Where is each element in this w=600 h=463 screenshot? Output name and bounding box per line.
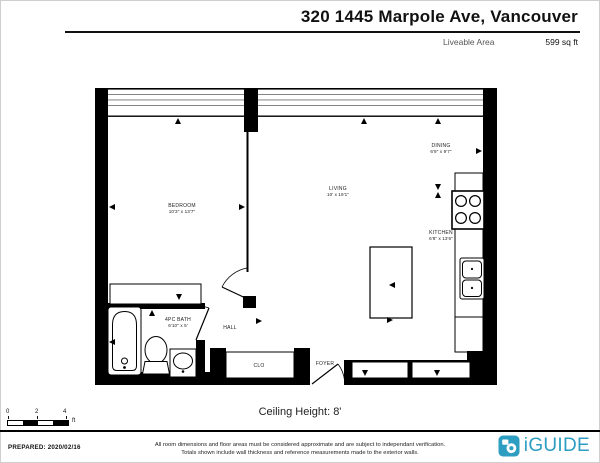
scale-tickmark [8, 416, 9, 419]
kitchen-sink-icon [460, 258, 484, 299]
scale-segment [23, 421, 38, 425]
room-label-clo: CLO [253, 363, 264, 369]
scale-segment [53, 421, 68, 425]
room-dims: 6'9" x 9'7" [430, 149, 451, 155]
room-name: FOYER [316, 361, 334, 367]
scale-tick-0: 0 [6, 409, 9, 415]
room-label-living: LIVING 10' x 19'1" [327, 186, 349, 198]
kitchen-island [370, 247, 412, 318]
room-label-bedroom: BEDROOM 10'3" x 13'7" [168, 203, 196, 215]
floorplan-page: 320 1445 Marpole Ave, Vancouver Liveable… [0, 0, 600, 463]
disclaimer-text: All room dimensions and floor areas must… [80, 441, 520, 457]
window-wall [95, 88, 497, 117]
room-dims: 10'3" x 13'7" [168, 209, 196, 215]
room-name: HALL [223, 325, 237, 331]
prepared-date: PREPARED: 2020/02/16 [8, 444, 81, 451]
room-dims: 6'8" x 13'6" [429, 236, 453, 242]
disclaimer-line-2: Totals shown include wall thickness and … [80, 449, 520, 457]
ceiling-height: Ceiling Height: 8' [0, 406, 600, 418]
scale-tickmark [37, 416, 38, 419]
room-label-hall: HALL [223, 325, 237, 331]
room-label-dining: DINING 6'9" x 9'7" [430, 143, 451, 155]
scale-segment [38, 421, 53, 425]
room-label-foyer: FOYER [316, 361, 334, 367]
footer-divider [0, 430, 600, 432]
disclaimer-line-1: All room dimensions and floor areas must… [80, 441, 520, 449]
iguide-wordmark: iGUIDE [524, 435, 590, 457]
stove-icon [452, 191, 484, 229]
room-label-bath: 4PC BATH 6'10" x 5' [165, 317, 191, 329]
scale-bar [7, 420, 69, 426]
iguide-logo: iGUIDE [498, 435, 590, 457]
scale-segment [8, 421, 23, 425]
bath-sink-icon [170, 349, 196, 377]
floorplan-drawing [0, 0, 600, 463]
scale-tick-2: 2 [35, 409, 38, 415]
bedroom-closet [110, 284, 201, 304]
toilet-icon [143, 337, 170, 375]
scale-tickmark [66, 416, 67, 419]
room-label-kitchen: KITCHEN 6'8" x 13'6" [429, 230, 453, 242]
scale-tick-4: 4 [63, 409, 66, 415]
scale-unit: ft [72, 418, 75, 424]
room-dims: 6'10" x 5' [165, 323, 191, 329]
room-dims: 10' x 19'1" [327, 192, 349, 198]
room-name: CLO [253, 363, 264, 369]
iguide-camera-icon [498, 435, 520, 457]
dimension-arrows [109, 118, 482, 376]
